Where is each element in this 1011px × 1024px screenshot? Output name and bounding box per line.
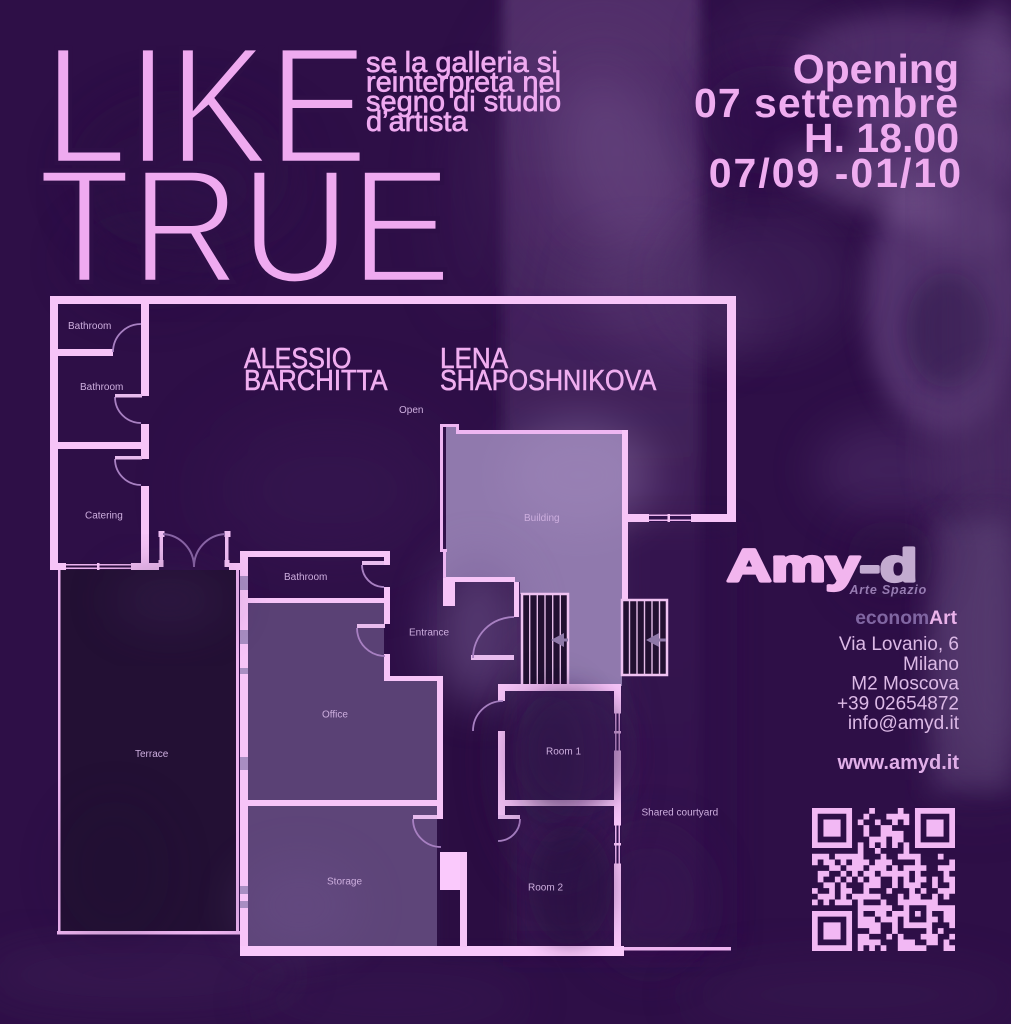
svg-text:Bathroom: Bathroom — [68, 321, 111, 332]
svg-text:info@amyd.it: info@amyd.it — [848, 713, 960, 734]
svg-text:Entrance: Entrance — [409, 628, 449, 639]
svg-text:www.amyd.it: www.amyd.it — [836, 752, 959, 774]
svg-text:Shared courtyard: Shared courtyard — [642, 808, 719, 819]
svg-text:d’artista: d’artista — [366, 106, 468, 138]
svg-text:Room 1: Room 1 — [546, 747, 581, 758]
svg-text:BARCHITTA: BARCHITTA — [244, 364, 388, 397]
svg-text:economArt: economArt — [855, 608, 957, 629]
svg-text:Milano: Milano — [903, 654, 959, 675]
svg-text:Bathroom: Bathroom — [80, 382, 123, 393]
svg-text:Catering: Catering — [85, 511, 123, 522]
svg-text:Office: Office — [322, 710, 348, 721]
svg-text:Terrace: Terrace — [135, 749, 169, 760]
svg-text:Room 2: Room 2 — [528, 883, 563, 894]
svg-text:07/09 -01/10: 07/09 -01/10 — [709, 150, 963, 196]
svg-text:Via Lovanio, 6: Via Lovanio, 6 — [839, 634, 959, 655]
svg-text:SHAPOSHNIKOVA: SHAPOSHNIKOVA — [440, 363, 657, 396]
svg-text:M2 Moscova: M2 Moscova — [851, 674, 959, 695]
svg-text:Arte Spazio: Arte Spazio — [848, 583, 927, 597]
svg-text:Open: Open — [399, 405, 423, 416]
svg-text:Building: Building — [524, 513, 560, 524]
svg-text:Bathroom: Bathroom — [284, 572, 327, 583]
svg-text:+39 02654872: +39 02654872 — [837, 694, 959, 715]
svg-text:Storage: Storage — [327, 877, 362, 888]
svg-text:TRUE: TRUE — [38, 137, 452, 318]
